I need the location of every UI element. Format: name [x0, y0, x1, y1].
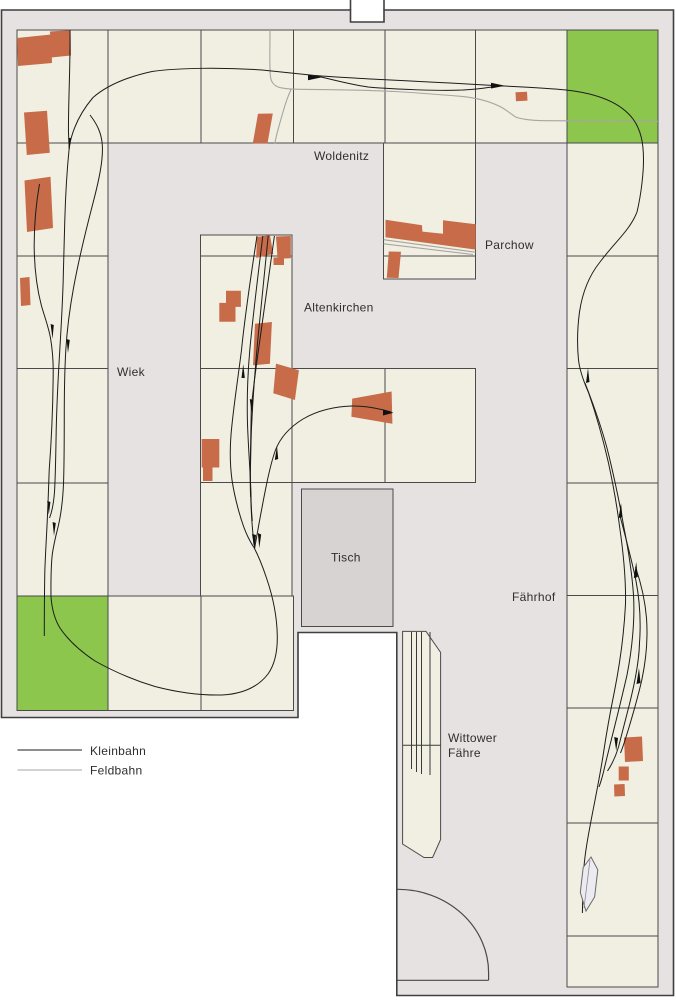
svg-text:Fährhof: Fährhof	[512, 590, 556, 604]
svg-text:Parchow: Parchow	[485, 238, 534, 252]
svg-text:Woldenitz: Woldenitz	[314, 149, 369, 163]
svg-text:Altenkirchen: Altenkirchen	[304, 301, 374, 315]
svg-text:Feldbahn: Feldbahn	[90, 764, 142, 778]
svg-text:Tisch: Tisch	[331, 551, 361, 565]
svg-text:Fähre: Fähre	[448, 746, 481, 760]
svg-text:Wittower: Wittower	[448, 731, 497, 745]
svg-text:Wiek: Wiek	[117, 365, 146, 379]
svg-text:Kleinbahn: Kleinbahn	[90, 744, 146, 758]
